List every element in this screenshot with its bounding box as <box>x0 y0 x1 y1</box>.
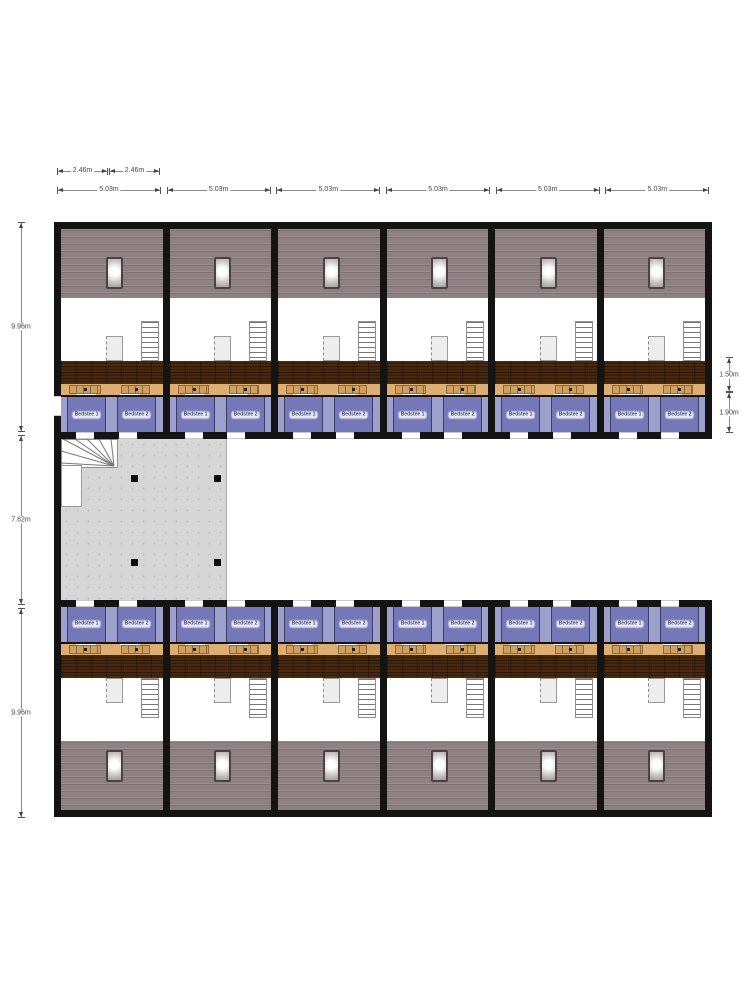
dimension-arrow <box>374 188 379 192</box>
wood-floor-band <box>495 655 597 678</box>
bed-label: Bedstee 1 <box>290 621 317 627</box>
bed-gap <box>265 607 271 642</box>
roof-deck <box>387 741 489 810</box>
shaft <box>648 336 665 361</box>
ladder-icon <box>69 385 100 394</box>
ladder-icon <box>503 645 534 654</box>
dimension: 1.90m <box>725 392 734 433</box>
skylight-icon <box>540 257 557 289</box>
ladder-icon <box>446 645 475 654</box>
bed: Bedstee 1 <box>284 397 323 432</box>
dimension-tick <box>159 168 160 175</box>
bed-label: Bedstee 2 <box>124 412 151 418</box>
dimension-label: 1.50m <box>717 371 740 378</box>
bed-label: Bedstee 2 <box>558 621 585 627</box>
door-opening <box>336 600 354 607</box>
column <box>214 475 221 482</box>
skylight-icon <box>648 257 665 289</box>
dimension-tick <box>160 187 161 194</box>
bed: Bedstee 1 <box>67 607 106 642</box>
bed-step-band <box>387 644 489 656</box>
roof-deck <box>495 229 597 298</box>
bed-label: Bedstee 2 <box>341 412 368 418</box>
roof-deck <box>170 229 272 298</box>
door-opening <box>510 432 528 439</box>
bed: Bedstee 1 <box>610 397 649 432</box>
door-opening <box>661 600 679 607</box>
door-opening <box>402 600 420 607</box>
skylight-icon <box>431 257 448 289</box>
bed: Bedstee 2 <box>117 607 156 642</box>
ladder-icon <box>338 645 367 654</box>
bed-label: Bedstee 1 <box>290 412 317 418</box>
column <box>214 559 221 566</box>
bed-label: Bedstee 2 <box>449 412 476 418</box>
dimension: 7.62m <box>17 435 26 605</box>
corridor-wall <box>61 432 163 439</box>
bed-gap <box>649 397 660 432</box>
corridor-wall <box>61 600 163 607</box>
bed-label: Bedstee 1 <box>399 412 426 418</box>
upper-floor-area <box>387 298 489 360</box>
dimension-tick <box>18 817 25 818</box>
bed-label: Bedstee 2 <box>232 621 259 627</box>
wood-floor-band <box>387 655 489 678</box>
ladder-icon <box>229 645 258 654</box>
skylight-icon <box>540 750 557 782</box>
door-opening <box>336 432 354 439</box>
dimension-arrow <box>19 599 23 604</box>
wood-floor-band <box>604 655 706 678</box>
bed-label: Bedstee 2 <box>666 412 693 418</box>
door-opening <box>661 432 679 439</box>
bed-gap <box>106 607 117 642</box>
dimension-arrow <box>703 188 708 192</box>
dimension-arrow <box>484 188 489 192</box>
bed-label: Bedstee 1 <box>73 412 100 418</box>
bed-zone: Bedstee 1Bedstee 2 <box>495 395 597 432</box>
corridor-wall <box>387 600 489 607</box>
unit: Bedstee 1Bedstee 2 <box>278 229 380 439</box>
bed: Bedstee 2 <box>551 607 590 642</box>
dimension-tick <box>726 432 733 433</box>
dimension-arrow <box>19 436 23 441</box>
door-opening <box>402 432 420 439</box>
bed-gap <box>590 397 596 432</box>
dimension: 5.03m <box>57 186 161 195</box>
door-opening <box>510 600 528 607</box>
wood-floor-band <box>170 361 272 384</box>
bed-zone: Bedstee 1Bedstee 2 <box>278 395 380 432</box>
dimension-arrow <box>155 188 160 192</box>
bed-label: Bedstee 1 <box>399 621 426 627</box>
dimension-tick <box>107 168 108 175</box>
bed-step-band <box>495 384 597 396</box>
dimension: 5.03m <box>496 186 600 195</box>
bed-label: Bedstee 1 <box>507 621 534 627</box>
bed-step-band <box>495 644 597 656</box>
door-opening <box>444 600 462 607</box>
door-opening <box>227 600 245 607</box>
stairwell-closet <box>61 465 82 507</box>
wood-floor-band <box>495 361 597 384</box>
corridor-wall <box>170 600 272 607</box>
bed-zone: Bedstee 1Bedstee 2 <box>170 395 272 432</box>
bed: Bedstee 2 <box>334 397 373 432</box>
bed: Bedstee 2 <box>334 607 373 642</box>
shaft <box>540 336 557 361</box>
bed-gap <box>323 397 334 432</box>
door-opening <box>619 600 637 607</box>
dimension-tick <box>270 187 271 194</box>
wood-floor-band <box>604 361 706 384</box>
wood-floor-band <box>387 361 489 384</box>
corridor-wall <box>278 600 380 607</box>
ladder-icon <box>612 385 643 394</box>
dimension-label: 2.46m <box>123 167 146 174</box>
ladder-icon <box>555 645 584 654</box>
bed-gap <box>265 397 271 432</box>
stairs-icon <box>249 321 267 361</box>
bed-gap <box>699 607 705 642</box>
ladder-icon <box>395 385 426 394</box>
bed-label: Bedstee 1 <box>616 621 643 627</box>
wood-floor-band <box>278 655 380 678</box>
bed-zone: Bedstee 1Bedstee 2 <box>278 607 380 644</box>
bed: Bedstee 2 <box>443 607 482 642</box>
bed-gap <box>540 607 551 642</box>
upper-floor-area <box>495 678 597 740</box>
ladder-icon <box>121 645 150 654</box>
unit: Bedstee 1Bedstee 2 <box>387 229 489 439</box>
ladder-icon <box>395 645 426 654</box>
dimension-label: 5.03m <box>317 186 340 193</box>
unit: Bedstee 1Bedstee 2 <box>170 229 272 439</box>
bed-gap <box>432 607 443 642</box>
shaft <box>323 336 340 361</box>
upper-floor-area <box>170 678 272 740</box>
dimension-label: 5.03m <box>97 186 120 193</box>
skylight-icon <box>106 257 123 289</box>
dimension-tick <box>599 187 600 194</box>
unit: Bedstee 1Bedstee 2 <box>61 229 163 439</box>
corridor-wall <box>170 432 272 439</box>
dimension-arrow <box>727 386 731 391</box>
skylight-icon <box>323 257 340 289</box>
ladder-icon <box>286 385 317 394</box>
roof-deck <box>170 741 272 810</box>
door-opening <box>185 600 203 607</box>
upper-floor-area <box>170 298 272 360</box>
dimension-label: 5.03m <box>646 186 669 193</box>
bed: Bedstee 2 <box>660 607 699 642</box>
dimension: 5.03m <box>386 186 490 195</box>
upper-floor-area <box>604 678 706 740</box>
dimension-tick <box>18 604 25 605</box>
dimension-label: 7.62m <box>9 517 32 524</box>
dimension-label: 1.90m <box>717 409 740 416</box>
bed-step-band <box>604 384 706 396</box>
upper-floor-area <box>495 298 597 360</box>
bed-step-band <box>278 644 380 656</box>
stairs-icon <box>683 321 701 361</box>
column <box>131 559 138 566</box>
bed-zone: Bedstee 1Bedstee 2 <box>387 395 489 432</box>
shaft <box>431 678 448 703</box>
bed: Bedstee 2 <box>117 397 156 432</box>
bed-zone: Bedstee 1Bedstee 2 <box>61 395 163 432</box>
unit: Bedstee 1Bedstee 2 <box>61 600 163 810</box>
dimension-arrow <box>387 188 392 192</box>
dimension-arrow <box>727 393 731 398</box>
upper-floor-area <box>387 678 489 740</box>
bed-zone: Bedstee 1Bedstee 2 <box>61 607 163 644</box>
bed-gap <box>699 397 705 432</box>
dimension-arrow <box>265 188 270 192</box>
ladder-icon <box>612 645 643 654</box>
stairs-icon <box>575 678 593 718</box>
dimension-tick <box>708 187 709 194</box>
dimension-arrow <box>58 188 63 192</box>
bed-label: Bedstee 2 <box>124 621 151 627</box>
dimension-label: 9.96m <box>9 324 32 331</box>
ladder-icon <box>503 385 534 394</box>
bed: Bedstee 2 <box>551 397 590 432</box>
ladder-icon <box>338 385 367 394</box>
bed-label: Bedstee 2 <box>666 621 693 627</box>
bed-step-band <box>170 644 272 656</box>
dimension: 9.96m <box>17 222 26 432</box>
bed: Bedstee 2 <box>226 397 265 432</box>
dimension-arrow <box>594 188 599 192</box>
dimension-arrow <box>19 812 23 817</box>
ladder-icon <box>286 645 317 654</box>
bed-gap <box>106 397 117 432</box>
bed-step-band <box>170 384 272 396</box>
bed: Bedstee 1 <box>67 397 106 432</box>
wood-floor-band <box>61 361 163 384</box>
corridor-wall <box>495 432 597 439</box>
bed-gap <box>649 607 660 642</box>
unit-row-south: Bedstee 1Bedstee 2Bedstee 1Bedstee 2Beds… <box>54 600 712 817</box>
stairs-icon <box>141 321 159 361</box>
stairs-icon <box>358 678 376 718</box>
stairs-icon <box>466 678 484 718</box>
bed: Bedstee 1 <box>176 607 215 642</box>
door-opening <box>119 600 137 607</box>
dimension-arrow <box>102 169 107 173</box>
upper-floor-area <box>278 298 380 360</box>
bed-gap <box>215 607 226 642</box>
door-opening <box>76 600 94 607</box>
bed-label: Bedstee 2 <box>449 621 476 627</box>
bed-zone: Bedstee 1Bedstee 2 <box>495 607 597 644</box>
stairs-icon <box>141 678 159 718</box>
bed: Bedstee 1 <box>501 397 540 432</box>
door-opening <box>227 432 245 439</box>
skylight-icon <box>323 750 340 782</box>
door-opening <box>293 432 311 439</box>
stairs-icon <box>575 321 593 361</box>
dimension-label: 5.03m <box>207 186 230 193</box>
door-opening <box>553 432 571 439</box>
unit: Bedstee 1Bedstee 2 <box>604 600 706 810</box>
wood-floor-band <box>170 655 272 678</box>
dimension-arrow <box>497 188 502 192</box>
dimension-arrow <box>606 188 611 192</box>
corridor-wall <box>278 432 380 439</box>
dimension-label: 2.46m <box>71 167 94 174</box>
corridor-wall <box>604 432 706 439</box>
bed-gap <box>540 397 551 432</box>
bed-gap <box>373 397 379 432</box>
bed-step-band <box>278 384 380 396</box>
wood-floor-band <box>278 361 380 384</box>
bed: Bedstee 1 <box>393 397 432 432</box>
upper-floor-area <box>61 678 163 740</box>
skylight-icon <box>214 750 231 782</box>
bed-gap <box>156 607 162 642</box>
bed-gap <box>373 607 379 642</box>
dimension-arrow <box>277 188 282 192</box>
dimension-arrow <box>19 426 23 431</box>
dimension-arrow <box>727 427 731 432</box>
roof-deck <box>278 741 380 810</box>
dimension-tick <box>379 187 380 194</box>
stairs-icon <box>466 321 484 361</box>
dimension-arrow <box>154 169 159 173</box>
roof-deck <box>61 229 163 298</box>
bed: Bedstee 2 <box>226 607 265 642</box>
stairs-icon <box>249 678 267 718</box>
dimension-tick <box>489 187 490 194</box>
dimension-arrow <box>19 223 23 228</box>
ladder-icon <box>178 385 209 394</box>
ladder-icon <box>229 385 258 394</box>
roof-deck <box>495 741 597 810</box>
roof-deck <box>387 229 489 298</box>
roof-deck <box>604 229 706 298</box>
bed-label: Bedstee 2 <box>341 621 368 627</box>
dimension: 2.46m <box>109 167 160 176</box>
bed-gap <box>590 607 596 642</box>
dimension-arrow <box>727 358 731 363</box>
bed-step-band <box>387 384 489 396</box>
dimension: 1.50m <box>725 357 734 392</box>
dimension-label: 9.96m <box>9 710 32 717</box>
upper-floor-area <box>604 298 706 360</box>
dimension: 5.03m <box>276 186 380 195</box>
bed-step-band <box>604 644 706 656</box>
shaft <box>106 336 123 361</box>
dimension-arrow <box>19 609 23 614</box>
unit: Bedstee 1Bedstee 2 <box>495 229 597 439</box>
shaft <box>106 678 123 703</box>
bed: Bedstee 2 <box>660 397 699 432</box>
door-opening <box>293 600 311 607</box>
winder-stairs-icon <box>61 439 118 468</box>
landing-area <box>61 439 227 600</box>
dimension: 2.46m <box>57 167 108 176</box>
ladder-icon <box>121 385 150 394</box>
unit: Bedstee 1Bedstee 2 <box>604 229 706 439</box>
bed-label: Bedstee 2 <box>232 412 259 418</box>
door-opening <box>619 432 637 439</box>
shaft <box>648 678 665 703</box>
skylight-icon <box>648 750 665 782</box>
bed-step-band <box>61 384 163 396</box>
bed-zone: Bedstee 1Bedstee 2 <box>604 395 706 432</box>
wood-floor-band <box>61 655 163 678</box>
corridor-wall <box>495 600 597 607</box>
skylight-icon <box>431 750 448 782</box>
roof-deck <box>61 741 163 810</box>
dimension-arrow <box>168 188 173 192</box>
unit-row-north: Bedstee 1Bedstee 2Bedstee 1Bedstee 2Beds… <box>54 222 712 439</box>
skylight-icon <box>214 257 231 289</box>
bed-gap <box>482 397 488 432</box>
stairs-icon <box>358 321 376 361</box>
unit: Bedstee 1Bedstee 2 <box>495 600 597 810</box>
bed-label: Bedstee 1 <box>182 412 209 418</box>
corridor-wall <box>604 600 706 607</box>
bed: Bedstee 1 <box>501 607 540 642</box>
bed: Bedstee 1 <box>610 607 649 642</box>
bed-gap <box>215 397 226 432</box>
bed-zone: Bedstee 1Bedstee 2 <box>387 607 489 644</box>
unit: Bedstee 1Bedstee 2 <box>170 600 272 810</box>
bed-gap <box>482 607 488 642</box>
dimension: 9.96m <box>17 608 26 818</box>
ladder-icon <box>446 385 475 394</box>
unit: Bedstee 1Bedstee 2 <box>387 600 489 810</box>
ladder-icon <box>69 645 100 654</box>
bed-gap <box>156 397 162 432</box>
bed: Bedstee 1 <box>176 397 215 432</box>
dimension-arrow <box>110 169 115 173</box>
bed-label: Bedstee 1 <box>182 621 209 627</box>
unit: Bedstee 1Bedstee 2 <box>278 600 380 810</box>
column <box>131 475 138 482</box>
ladder-icon <box>663 645 692 654</box>
dimension-arrow <box>58 169 63 173</box>
shaft <box>323 678 340 703</box>
ladder-icon <box>178 645 209 654</box>
floor-plan: Bedstee 1Bedstee 2Bedstee 1Bedstee 2Beds… <box>0 0 750 1000</box>
dimension-label: 5.03m <box>536 186 559 193</box>
bed-zone: Bedstee 1Bedstee 2 <box>604 607 706 644</box>
dimension-label: 5.03m <box>426 186 449 193</box>
dimension-tick <box>18 431 25 432</box>
stairs-icon <box>683 678 701 718</box>
shaft <box>214 678 231 703</box>
ladder-icon <box>555 385 584 394</box>
skylight-icon <box>106 750 123 782</box>
shaft <box>540 678 557 703</box>
corridor-wall <box>387 432 489 439</box>
bed: Bedstee 1 <box>284 607 323 642</box>
shaft <box>431 336 448 361</box>
roof-deck <box>278 229 380 298</box>
door-opening <box>444 432 462 439</box>
ladder-icon <box>663 385 692 394</box>
bed-zone: Bedstee 1Bedstee 2 <box>170 607 272 644</box>
bed: Bedstee 1 <box>393 607 432 642</box>
dimension: 5.03m <box>167 186 271 195</box>
bed-label: Bedstee 2 <box>558 412 585 418</box>
bed-step-band <box>61 644 163 656</box>
roof-deck <box>604 741 706 810</box>
